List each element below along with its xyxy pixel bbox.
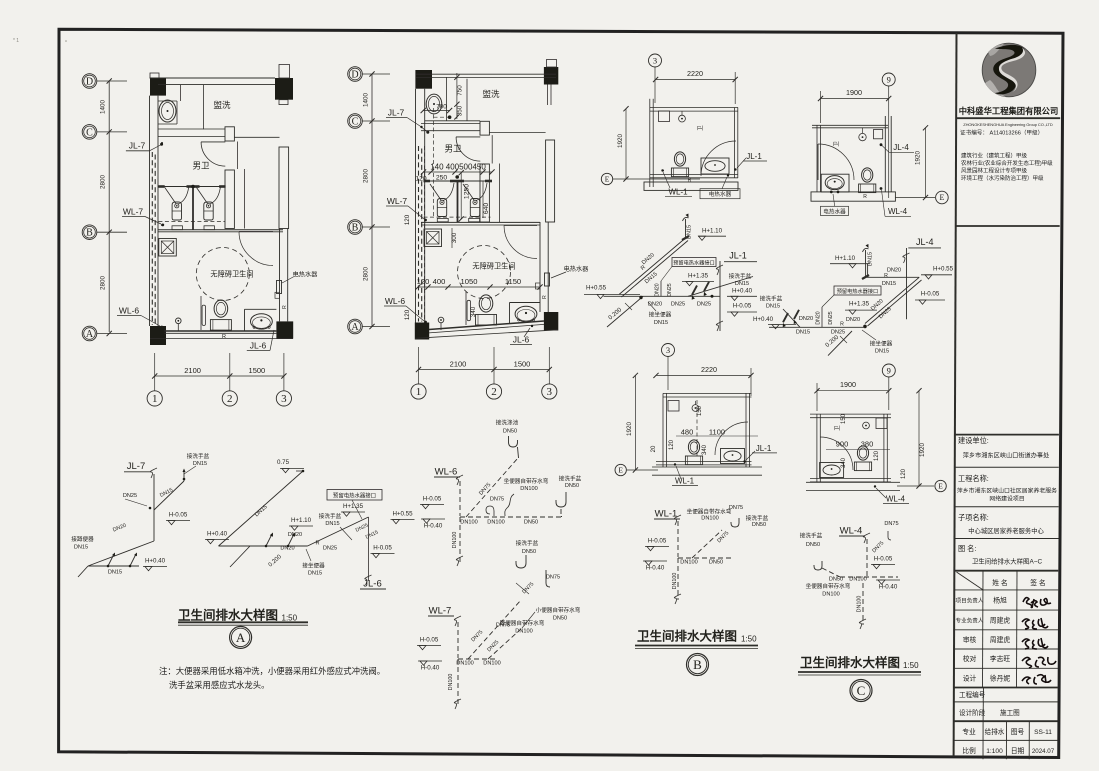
svg-text:1050: 1050 [461,277,478,286]
svg-text:卫生间排水大样图: 卫生间排水大样图 [178,608,278,623]
svg-text:接蹲便器: 接蹲便器 [71,535,94,543]
svg-text:9: 9 [887,74,891,84]
svg-text:DN50: DN50 [565,483,579,489]
svg-text:电热水器: 电热水器 [293,271,319,279]
svg-text:DN20: DN20 [655,283,661,296]
svg-text:120: 120 [404,309,411,320]
svg-text:120: 120 [417,277,430,286]
svg-text:1500: 1500 [514,360,531,369]
svg-text:2100: 2100 [184,366,201,375]
svg-text:1400: 1400 [100,100,107,115]
svg-text:400: 400 [433,277,446,286]
svg-text:洗手盆采用感应式水龙头。: 洗手盆采用感应式水龙头。 [169,680,270,690]
svg-text:DN100: DN100 [483,661,500,667]
svg-text:2024.07: 2024.07 [1032,748,1055,755]
svg-text:DN15: DN15 [796,330,810,336]
svg-text:无障碍卫生间: 无障碍卫生间 [472,262,515,271]
svg-text:H+1.35: H+1.35 [688,273,709,280]
svg-text:卫生间给排水大样图A~C: 卫生间给排水大样图A~C [972,557,1043,566]
svg-text:DN15: DN15 [108,570,122,576]
svg-text:电热水器: 电热水器 [823,207,846,215]
svg-text:3: 3 [281,393,287,405]
svg-text:DN75: DN75 [884,521,898,527]
svg-text:DN100: DN100 [448,674,454,691]
svg-text:350: 350 [457,105,464,116]
svg-text:WL-1: WL-1 [675,477,695,486]
svg-text:D: D [351,69,358,80]
svg-text:R: R [315,541,319,547]
svg-text:H-0.05: H-0.05 [921,291,940,298]
svg-text:DN50: DN50 [522,549,536,555]
svg-text:DN50: DN50 [553,616,567,622]
svg-text:E: E [618,466,623,475]
svg-text:中心城区居家养老服务中心: 中心城区居家养老服务中心 [968,526,1044,535]
svg-text:图 名:: 图 名: [958,544,976,553]
svg-text:H-0.40: H-0.40 [646,565,665,572]
svg-text:E: E [939,193,944,202]
svg-text:R: R [222,334,226,340]
svg-text:B: B [693,657,702,672]
svg-text:接洗手盆: 接洗手盆 [746,514,769,522]
svg-text:150: 150 [841,413,847,424]
svg-text:0.75: 0.75 [277,459,290,466]
svg-text:340: 340 [841,457,847,468]
svg-text:2: 2 [491,386,497,398]
svg-text:DN15: DN15 [882,281,896,287]
svg-text:R: R [282,305,288,309]
svg-text:R: R [840,321,844,327]
svg-text:A: A [351,322,359,333]
svg-text:DN50: DN50 [752,522,766,528]
svg-text:1900: 1900 [840,380,856,389]
svg-text:1100: 1100 [709,428,725,437]
svg-text:校对: 校对 [963,654,977,663]
svg-text:DN100: DN100 [487,520,504,526]
svg-text:建筑行业（建筑工程）甲级: 建筑行业（建筑工程）甲级 [961,152,1028,160]
svg-text:WL-1: WL-1 [668,187,688,196]
svg-text:接洗涤池: 接洗涤池 [496,419,519,427]
svg-text:2800: 2800 [363,267,370,282]
svg-text:DN20: DN20 [288,532,302,538]
svg-text:工程名称:: 工程名称: [958,474,989,483]
svg-text:卫: 卫 [833,141,840,147]
svg-text:盥洗: 盥洗 [213,100,231,110]
svg-text:专业负责人: 专业负责人 [956,616,984,624]
svg-text:H+1.35: H+1.35 [849,301,870,308]
svg-text:2: 2 [227,393,233,405]
svg-text:日期: 日期 [1011,747,1025,755]
svg-text:H-0.05: H-0.05 [648,538,667,545]
svg-text:DN15: DN15 [735,281,749,287]
svg-text:1250: 1250 [464,184,471,199]
svg-text:DN25: DN25 [828,311,834,324]
svg-text:3: 3 [547,386,553,398]
svg-text:卫生间排水大样图: 卫生间排水大样图 [800,655,900,670]
svg-text:R: R [863,194,867,200]
svg-text:DN20: DN20 [816,311,822,324]
svg-text:B: B [352,222,359,233]
svg-text:H+0.40: H+0.40 [207,531,228,538]
svg-text:DN20: DN20 [799,316,813,322]
svg-text:DN25: DN25 [697,302,711,308]
svg-text:2800: 2800 [100,175,107,190]
svg-text:B: B [86,228,93,239]
svg-text:DN75: DN75 [490,497,504,503]
svg-text:1900: 1900 [846,88,862,97]
svg-text:设计阶段: 设计阶段 [959,708,986,717]
svg-text:JL-1: JL-1 [729,251,747,261]
svg-text:杨旭: 杨旭 [993,595,1007,604]
svg-text:WL-4: WL-4 [840,526,863,537]
svg-text:H+0.40: H+0.40 [732,288,753,295]
svg-text:JL-1: JL-1 [746,152,762,161]
svg-text:DN15: DN15 [325,521,339,527]
svg-text:建设单位:: 建设单位: [958,436,989,445]
svg-text:2800: 2800 [100,276,107,291]
svg-text:DN20: DN20 [887,268,901,274]
svg-text:DN100: DN100 [822,592,839,598]
svg-text:2100: 2100 [450,360,467,369]
svg-text:给排水: 给排水 [985,727,1005,736]
svg-text:1920: 1920 [617,134,624,149]
svg-text:D: D [86,76,93,87]
svg-text:卫生间排水大样图: 卫生间排水大样图 [637,629,737,644]
svg-text:SS-11: SS-11 [1034,729,1052,736]
svg-text:小便器自带存水弯: 小便器自带存水弯 [536,606,581,614]
svg-text:施工图: 施工图 [1000,708,1020,717]
svg-text:JL-7: JL-7 [127,461,145,472]
svg-text:周建虎: 周建虎 [990,635,1011,644]
svg-text:JL-1: JL-1 [756,444,772,453]
svg-text:DN100: DN100 [857,596,863,613]
svg-text:WL-6: WL-6 [119,306,140,316]
svg-text:H-0.40: H-0.40 [424,523,443,530]
svg-text:WL-4: WL-4 [888,207,908,216]
svg-text:DN25: DN25 [123,493,137,499]
svg-text:1:50: 1:50 [741,635,757,644]
svg-text:9: 9 [887,365,891,375]
svg-text:340: 340 [702,444,708,455]
svg-text:1:100: 1:100 [986,748,1003,755]
svg-text:H+1.10: H+1.10 [835,255,856,262]
svg-text:盥洗: 盥洗 [482,89,500,99]
svg-text:3: 3 [666,345,670,355]
svg-text:1920: 1920 [915,151,922,166]
svg-text:2800: 2800 [363,169,370,184]
svg-text:卫: 卫 [834,425,841,431]
svg-text:签 名: 签 名 [1030,578,1045,587]
svg-text:A: A [236,630,246,645]
svg-text:DN20: DN20 [648,302,662,308]
svg-text:E: E [605,175,610,184]
svg-text:H+1.10: H+1.10 [291,517,312,524]
svg-text:1:50: 1:50 [903,661,919,670]
svg-text:萍乡市湘东区峡山口社区居家养老服务: 萍乡市湘东区峡山口社区居家养老服务 [957,487,1057,495]
svg-text:C: C [352,116,359,127]
svg-text:接洗手盆: 接洗手盆 [800,532,823,540]
svg-text:380: 380 [861,440,874,449]
svg-text:DN100: DN100 [672,573,678,590]
svg-text:1:50: 1:50 [282,614,298,623]
svg-text:H+0.55: H+0.55 [586,285,607,292]
svg-text:1400: 1400 [363,93,370,108]
svg-text:DN100: DN100 [701,516,718,522]
svg-text:接洗手盆: 接洗手盆 [319,512,342,520]
svg-text:卫: 卫 [697,125,704,131]
svg-text:工程编号: 工程编号 [959,690,986,699]
svg-text:周建虎: 周建虎 [990,615,1011,624]
svg-text:900: 900 [836,440,849,449]
svg-text:专业: 专业 [962,727,976,736]
svg-text:140 400500450: 140 400500450 [430,162,486,171]
svg-text:WL-7: WL-7 [123,207,144,217]
svg-text:DN15: DN15 [654,320,668,326]
svg-text:H+0.40: H+0.40 [145,558,166,565]
svg-text:* 1: * 1 [13,38,19,44]
svg-text:预留电热水器接口: 预留电热水器接口 [837,287,879,295]
svg-text:DN25: DN25 [667,283,673,296]
svg-text:徐丹妮: 徐丹妮 [990,673,1011,682]
svg-text:DN75: DN75 [729,505,743,511]
svg-text:H-0.05: H-0.05 [420,637,439,644]
svg-text:DN50: DN50 [709,560,723,566]
svg-text:接洗手盆: 接洗手盆 [760,295,783,303]
svg-text:A: A [86,329,94,340]
svg-text:DN100: DN100 [520,486,537,492]
svg-text:DN100: DN100 [456,661,473,667]
svg-text:接坐便器: 接坐便器 [870,340,893,348]
svg-text:H+0.55: H+0.55 [933,266,954,273]
svg-text:DN100: DN100 [452,532,458,549]
svg-text:DN75: DN75 [546,575,560,581]
svg-text:H+1.35: H+1.35 [343,503,364,510]
svg-text:DN15: DN15 [766,304,780,310]
svg-text:DN50: DN50 [806,542,820,548]
svg-text:蹲便器自带存水弯: 蹲便器自带存水弯 [500,619,545,627]
svg-text:120: 120 [874,450,880,461]
svg-text:JL-6: JL-6 [363,579,381,590]
svg-text:ZHONGKESHENGHUA Engineering Gr: ZHONGKESHENGHUA Engineering Group CO.,LT… [963,122,1053,127]
svg-text:1: 1 [416,386,422,398]
svg-text:120: 120 [669,439,675,450]
svg-text:接坐便器: 接坐便器 [302,562,325,570]
svg-text:3: 3 [653,55,657,65]
svg-text:萍乡市湘东区峡山口街道办事处: 萍乡市湘东区峡山口街道办事处 [963,452,1050,460]
svg-text:1920: 1920 [626,422,633,437]
svg-text:700: 700 [436,104,447,111]
svg-text:DN25: DN25 [831,330,845,336]
svg-text:电热水器: 电热水器 [564,265,590,273]
svg-text:R: R [542,295,548,299]
svg-text:DN100: DN100 [849,577,866,583]
svg-text:120: 120 [415,176,427,183]
svg-text:H-0.05: H-0.05 [733,303,752,310]
svg-text:H+1.10: H+1.10 [702,228,723,235]
svg-text:750: 750 [457,85,464,96]
svg-text:250: 250 [436,175,448,182]
svg-text:DN25: DN25 [671,302,685,308]
svg-text:接洗手盆: 接洗手盆 [559,475,582,483]
svg-text:李志旺: 李志旺 [990,654,1011,663]
svg-text:证书编号： A114013266（甲级）: 证书编号： A114013266（甲级） [960,129,1043,137]
svg-text:WL-7: WL-7 [387,196,408,206]
svg-text:1150: 1150 [505,277,521,286]
svg-text:WL-7: WL-7 [429,606,452,617]
svg-text:DN15: DN15 [74,545,88,551]
svg-text:项目负责人: 项目负责人 [956,596,984,604]
svg-text:H-0.40: H-0.40 [421,665,440,672]
svg-text:电热水器: 电热水器 [709,190,732,198]
svg-text:环境工程（水污染防治工程）甲级: 环境工程（水污染防治工程）甲级 [961,174,1044,182]
svg-text:120: 120 [901,468,907,479]
svg-text:比例: 比例 [962,746,976,755]
svg-text:网络建设项目: 网络建设项目 [989,495,1024,503]
svg-text:子项名称:: 子项名称: [958,513,989,522]
svg-text:接洗手盆: 接洗手盆 [729,272,752,280]
svg-text:预留电热水器接口: 预留电热水器接口 [333,491,376,499]
svg-text:DN100: DN100 [460,520,477,526]
svg-text:姓 名: 姓 名 [992,578,1007,587]
svg-text:340: 340 [470,306,477,317]
svg-text:风景园林工程设计专项甲级: 风景园林工程设计专项甲级 [961,167,1028,175]
svg-text:预留电热水器接口: 预留电热水器接口 [673,258,715,266]
svg-text:DN15: DN15 [308,571,322,577]
svg-text:R: R [884,273,888,279]
svg-text:H-0.40: H-0.40 [879,584,898,591]
svg-text:农林行业(农业综合开发生态工程)甲级: 农林行业(农业综合开发生态工程)甲级 [961,159,1053,167]
svg-text:JL-4: JL-4 [893,143,909,152]
svg-text:DN15: DN15 [193,461,207,467]
svg-text:坐便器自带存水弯: 坐便器自带存水弯 [687,508,732,516]
svg-text:DN100: DN100 [680,560,697,566]
svg-text:H-0.05: H-0.05 [423,496,442,503]
svg-text:WL-4: WL-4 [886,495,906,504]
svg-text:男卫: 男卫 [192,161,210,171]
svg-text:WL-6: WL-6 [435,467,458,478]
svg-text:E: E [938,482,943,491]
svg-text:DN50: DN50 [829,577,843,583]
svg-text:20: 20 [651,445,657,452]
svg-text:150: 150 [697,405,703,416]
svg-text:JL-4: JL-4 [916,237,934,247]
svg-text:JL-6: JL-6 [513,335,530,345]
svg-text:JL-6: JL-6 [250,340,267,350]
svg-text:DN20: DN20 [846,317,860,323]
svg-text:WL-6: WL-6 [385,296,406,306]
svg-text:坐便器自带存水弯: 坐便器自带存水弯 [504,477,549,485]
svg-text:DN50: DN50 [524,520,538,526]
svg-text:中科盛华工程集团有限公司: 中科盛华工程集团有限公司 [959,106,1059,116]
svg-text:2220: 2220 [701,365,717,374]
svg-text:640: 640 [483,203,490,215]
svg-text:H-0.05: H-0.05 [874,556,893,563]
svg-text:H+0.55: H+0.55 [392,511,413,518]
svg-text:接坐便器: 接坐便器 [649,311,672,319]
svg-text:120: 120 [404,214,411,225]
svg-text:H-0.05: H-0.05 [373,545,392,552]
svg-text:1500: 1500 [249,366,266,375]
svg-text:注：大便器采用低水箱冲洗，小便器采用红外感应式冲洗阀。: 注：大便器采用低水箱冲洗，小便器采用红外感应式冲洗阀。 [159,666,385,676]
svg-text:480: 480 [681,428,694,437]
svg-text:1: 1 [152,393,158,405]
svg-text:2220: 2220 [687,69,703,78]
svg-text:C: C [86,127,93,138]
svg-text:审核: 审核 [963,635,977,644]
svg-text:1920: 1920 [919,443,926,458]
svg-text:C: C [857,683,866,698]
svg-text:图号: 图号 [1011,728,1025,736]
svg-text:DN100: DN100 [515,629,532,635]
svg-text:R: R [688,178,692,184]
svg-text:WL-1: WL-1 [655,509,678,520]
svg-text:无障碍卫生间: 无障碍卫生间 [210,270,253,279]
svg-text:DN50: DN50 [503,428,517,434]
svg-text:H-0.05: H-0.05 [169,512,188,519]
svg-text:DN25: DN25 [323,546,337,552]
svg-text:设计: 设计 [963,673,977,682]
svg-text:H+0.40: H+0.40 [753,316,774,323]
svg-text:JL-7: JL-7 [129,140,146,150]
svg-text:男卫: 男卫 [444,144,462,154]
svg-text:坐便器自带存水弯: 坐便器自带存水弯 [806,582,851,590]
svg-text:DN15: DN15 [875,349,889,355]
svg-text:接洗手盆: 接洗手盆 [187,452,210,460]
svg-text:JL-7: JL-7 [388,108,405,118]
svg-text:接洗手盆: 接洗手盆 [516,539,539,547]
